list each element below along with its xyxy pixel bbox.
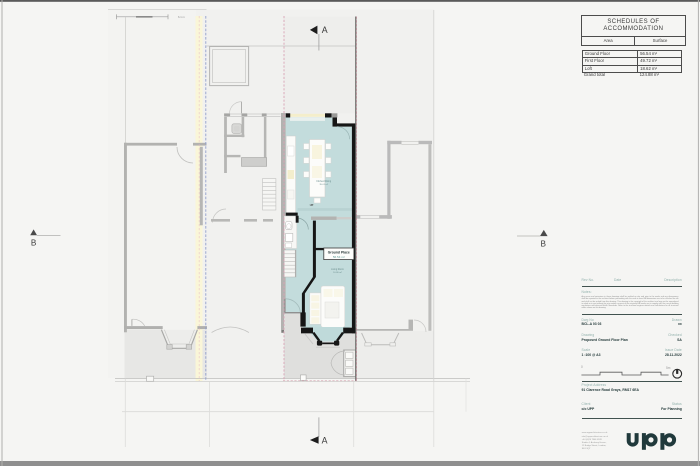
svg-text:6.1 m: 6.1 m	[178, 15, 185, 19]
svg-text:B: B	[31, 238, 37, 247]
svg-text:16.80 m²: 16.80 m²	[333, 271, 342, 274]
svg-text:56.54 m²: 56.54 m²	[333, 255, 345, 259]
svg-text:Living Room: Living Room	[331, 269, 344, 271]
svg-text:B: B	[541, 240, 547, 249]
svg-text:UP: UP	[310, 204, 314, 207]
svg-text:A: A	[322, 435, 328, 445]
svg-text:35.01 m²: 35.01 m²	[319, 183, 328, 186]
svg-text:Ground Place: Ground Place	[328, 251, 350, 255]
svg-text:A: A	[322, 25, 328, 35]
svg-text:Kitchen/Dining: Kitchen/Dining	[316, 180, 332, 183]
